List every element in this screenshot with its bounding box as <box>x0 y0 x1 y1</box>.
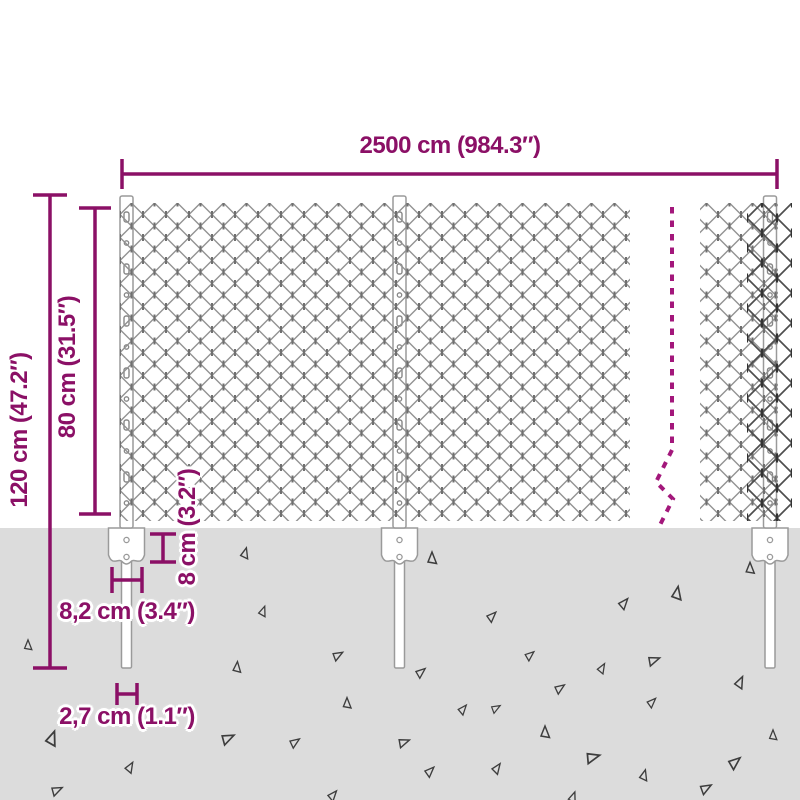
label-fence-height: 80 cm (31.5″) <box>56 296 80 438</box>
label-bracket-width: 8,2 cm (3.4″) <box>59 600 195 624</box>
label-total-height: 120 cm (47.2″) <box>8 352 32 507</box>
dim-total-width <box>122 159 777 189</box>
diagram-canvas <box>0 0 800 800</box>
label-total-width: 2500 cm (984.3″) <box>360 134 541 158</box>
label-bracket-height: 8 cm (3.2″) <box>176 469 200 586</box>
fence-dimension-diagram: 2500 cm (984.3″) 120 cm (47.2″) 80 cm (3… <box>0 0 800 800</box>
length-break-dashed-line <box>656 207 673 529</box>
label-post-width: 2,7 cm (1.1″) <box>59 705 195 729</box>
chain-link-mesh-roll-edge <box>747 203 792 521</box>
dim-fence-height <box>79 208 111 514</box>
